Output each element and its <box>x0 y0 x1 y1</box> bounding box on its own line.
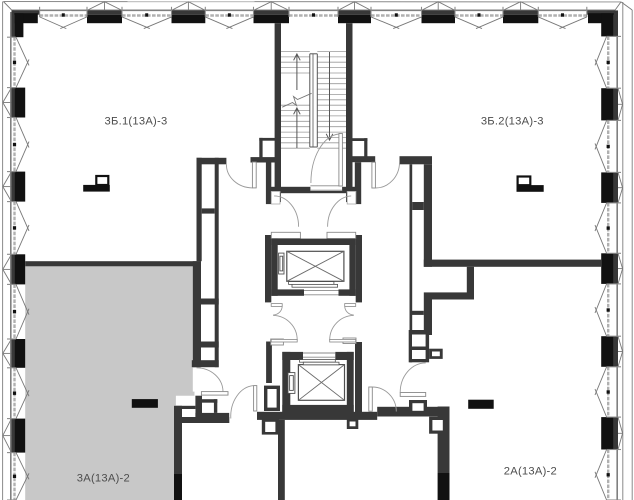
svg-text:2А(13А)-2: 2А(13А)-2 <box>504 466 557 478</box>
svg-text:3А(13А)-2: 3А(13А)-2 <box>77 472 130 484</box>
svg-text:3Б.2(13А)-3: 3Б.2(13А)-3 <box>481 116 544 128</box>
svg-text:3Б.1(13А)-3: 3Б.1(13А)-3 <box>105 115 168 127</box>
